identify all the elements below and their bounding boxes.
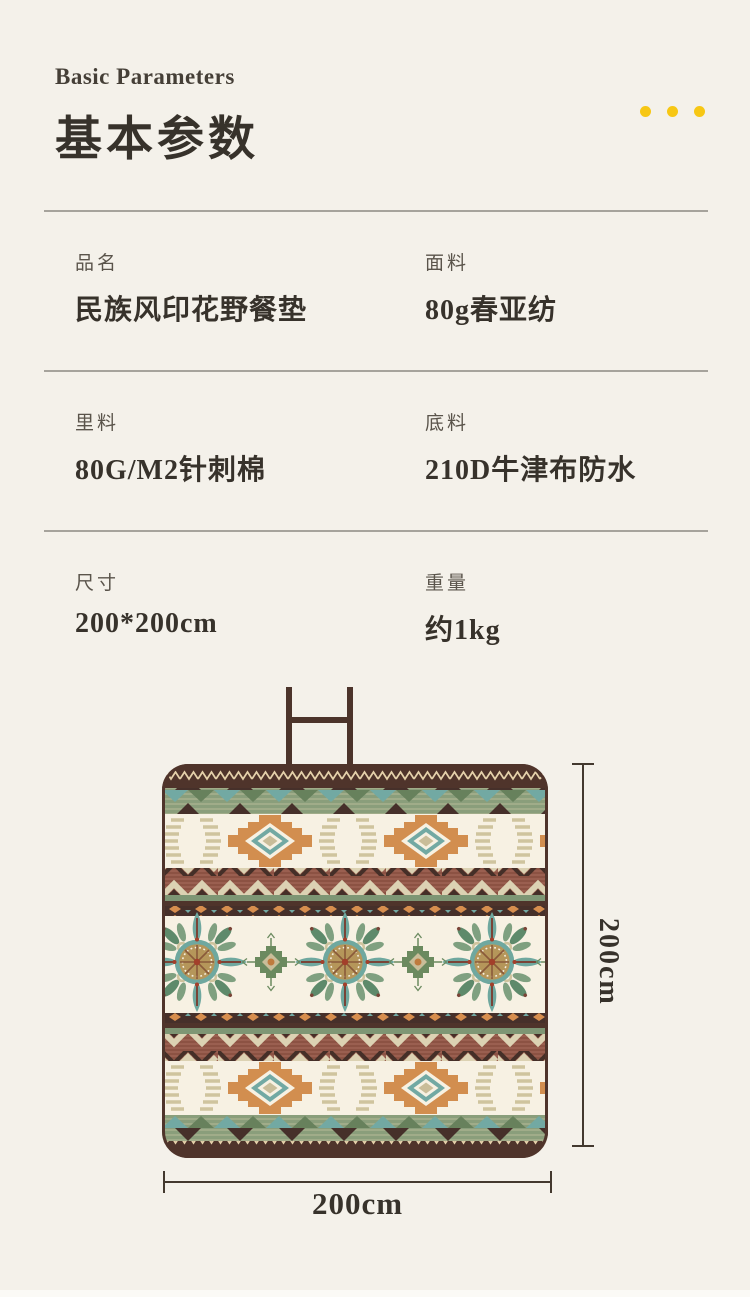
spec-value: 80g春亚纺 <box>425 288 708 328</box>
spec-cell: 尺寸 200*200cm <box>75 568 425 648</box>
spec-label: 面料 <box>425 248 708 275</box>
spec-value: 民族风印花野餐垫 <box>75 288 425 328</box>
spec-table: 品名 民族风印花野餐垫 面料 80g春亚纺 里料 80G/M2针刺棉 底料 21… <box>44 210 708 690</box>
mat-handle <box>286 717 353 723</box>
spec-row: 里料 80G/M2针刺棉 底料 210D牛津布防水 <box>44 370 708 530</box>
mat-handle <box>347 687 353 765</box>
spec-cell: 里料 80G/M2针刺棉 <box>75 408 425 488</box>
width-dimension-line <box>163 1181 552 1183</box>
dot-icon <box>640 106 651 117</box>
width-dimension-label: 200cm <box>163 1186 552 1222</box>
spec-row: 品名 民族风印花野餐垫 面料 80g春亚纺 <box>44 210 708 370</box>
next-section-edge <box>0 1290 750 1297</box>
spec-row: 尺寸 200*200cm 重量 约1kg <box>44 530 708 690</box>
spec-label: 底料 <box>425 408 708 435</box>
spec-cell: 面料 80g春亚纺 <box>425 248 708 328</box>
spec-value: 80G/M2针刺棉 <box>75 448 425 488</box>
spec-value: 210D牛津布防水 <box>425 448 708 488</box>
spec-label: 尺寸 <box>75 568 425 595</box>
spec-cell: 底料 210D牛津布防水 <box>425 408 708 488</box>
spec-label: 重量 <box>425 568 708 595</box>
height-dimension-label: 200cm <box>592 918 624 1006</box>
spec-label: 品名 <box>75 248 425 275</box>
decoration-dots <box>640 106 705 117</box>
dot-icon <box>694 106 705 117</box>
section-title-en: Basic Parameters <box>55 64 259 90</box>
product-image <box>162 764 548 1158</box>
spec-label: 里料 <box>75 408 425 435</box>
spec-value: 200*200cm <box>75 608 425 640</box>
height-dimension-line <box>582 763 584 1147</box>
section-title-zh: 基本参数 <box>55 100 259 169</box>
dot-icon <box>667 106 678 117</box>
spec-value: 约1kg <box>425 608 708 648</box>
mat-handle <box>286 687 292 765</box>
spec-cell: 重量 约1kg <box>425 568 708 648</box>
mat-pattern-svg <box>162 764 548 1158</box>
spec-cell: 品名 民族风印花野餐垫 <box>75 248 425 328</box>
page-header: Basic Parameters 基本参数 <box>55 64 259 169</box>
